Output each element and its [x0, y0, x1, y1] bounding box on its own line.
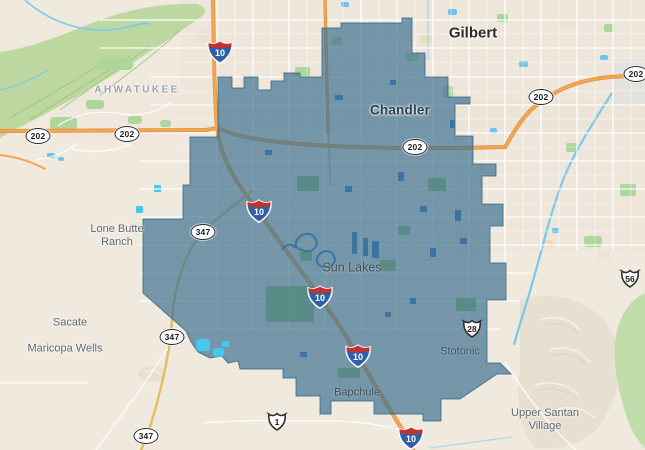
map-base-layer	[0, 0, 645, 450]
map-canvas[interactable]: Gilbert Chandler AHWATUKEE Lone Butte Ra…	[0, 0, 645, 450]
